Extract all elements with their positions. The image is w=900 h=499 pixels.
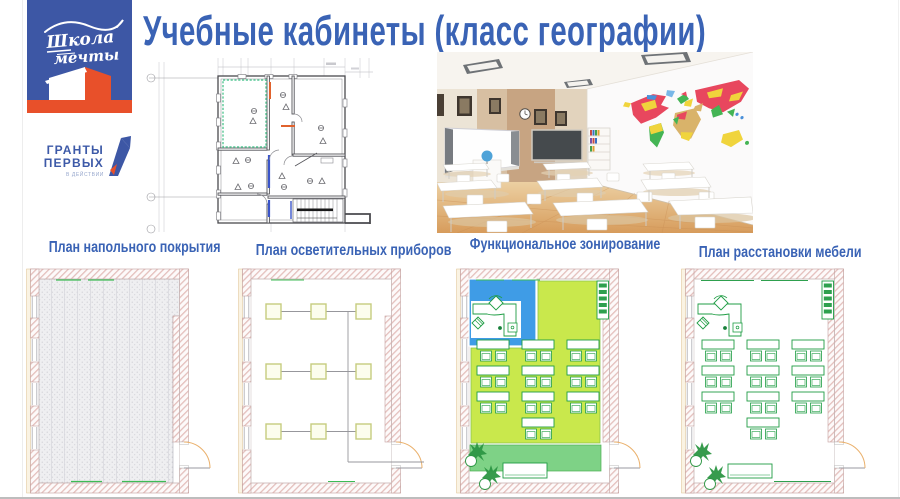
- student-desk: [702, 340, 824, 439]
- school-of-dreams-logo: Школа мечты: [27, 0, 132, 120]
- grants-pervykh-logo: ГРАНТЫ ПЕРВЫХ В ДЕЙСТВИИ: [36, 134, 132, 190]
- slide-edge-left: [22, 0, 23, 499]
- wall-clock-icon: [520, 109, 530, 119]
- room-shell: [239, 269, 423, 493]
- stairs-icon: [293, 199, 343, 222]
- architectural-plan-drawing: [141, 54, 433, 235]
- wiring-lines: [274, 312, 425, 463]
- bookshelf-icon: [822, 281, 834, 319]
- furniture-plan: [681, 266, 873, 496]
- bookshelf-icon: [597, 281, 609, 319]
- grants-subtitle: В ДЕЙСТВИИ: [36, 172, 104, 178]
- label-zoning-plan: Функциональное зонирование: [470, 236, 610, 254]
- exterior-wall-extension: [345, 214, 370, 224]
- bench: [503, 463, 547, 478]
- grants-text: ГРАНТЫ ПЕРВЫХ В ДЕЙСТВИИ: [36, 134, 104, 178]
- school-of-dreams-logo-graphic: Школа мечты: [27, 0, 132, 120]
- teacher-desk: [697, 296, 742, 336]
- bookshelf: [588, 128, 610, 170]
- classroom-render: [437, 52, 753, 233]
- label-floor-covering-plan: План напольного покрытия: [49, 239, 182, 257]
- label-furniture-plan: План расстановки мебели: [699, 244, 832, 262]
- plan-table: [321, 158, 333, 163]
- zoning-plan: [456, 266, 648, 496]
- grants-line2: ПЕРВЫХ: [36, 157, 104, 170]
- lighting-plan: [238, 266, 430, 496]
- slide-title: Учебные кабинеты (класс географии): [143, 7, 706, 55]
- grants-arrow-icon: [106, 134, 132, 180]
- dimension-text-blur: [326, 63, 336, 66]
- floor-covering-plan: [26, 266, 218, 496]
- logo-base-strip: [27, 100, 132, 113]
- presentation-slide: Школа мечты ГРАНТЫ ПЕРВЫХ В ДЕЙСТВИИ Уче…: [0, 0, 900, 499]
- chalkboard: [532, 130, 582, 163]
- slide-edge-right: [898, 0, 899, 499]
- globe-icon: [482, 151, 493, 162]
- dimension-text-blur2: [351, 68, 359, 70]
- bench: [728, 464, 772, 478]
- label-lighting-plan: План осветительных приборов: [256, 242, 396, 260]
